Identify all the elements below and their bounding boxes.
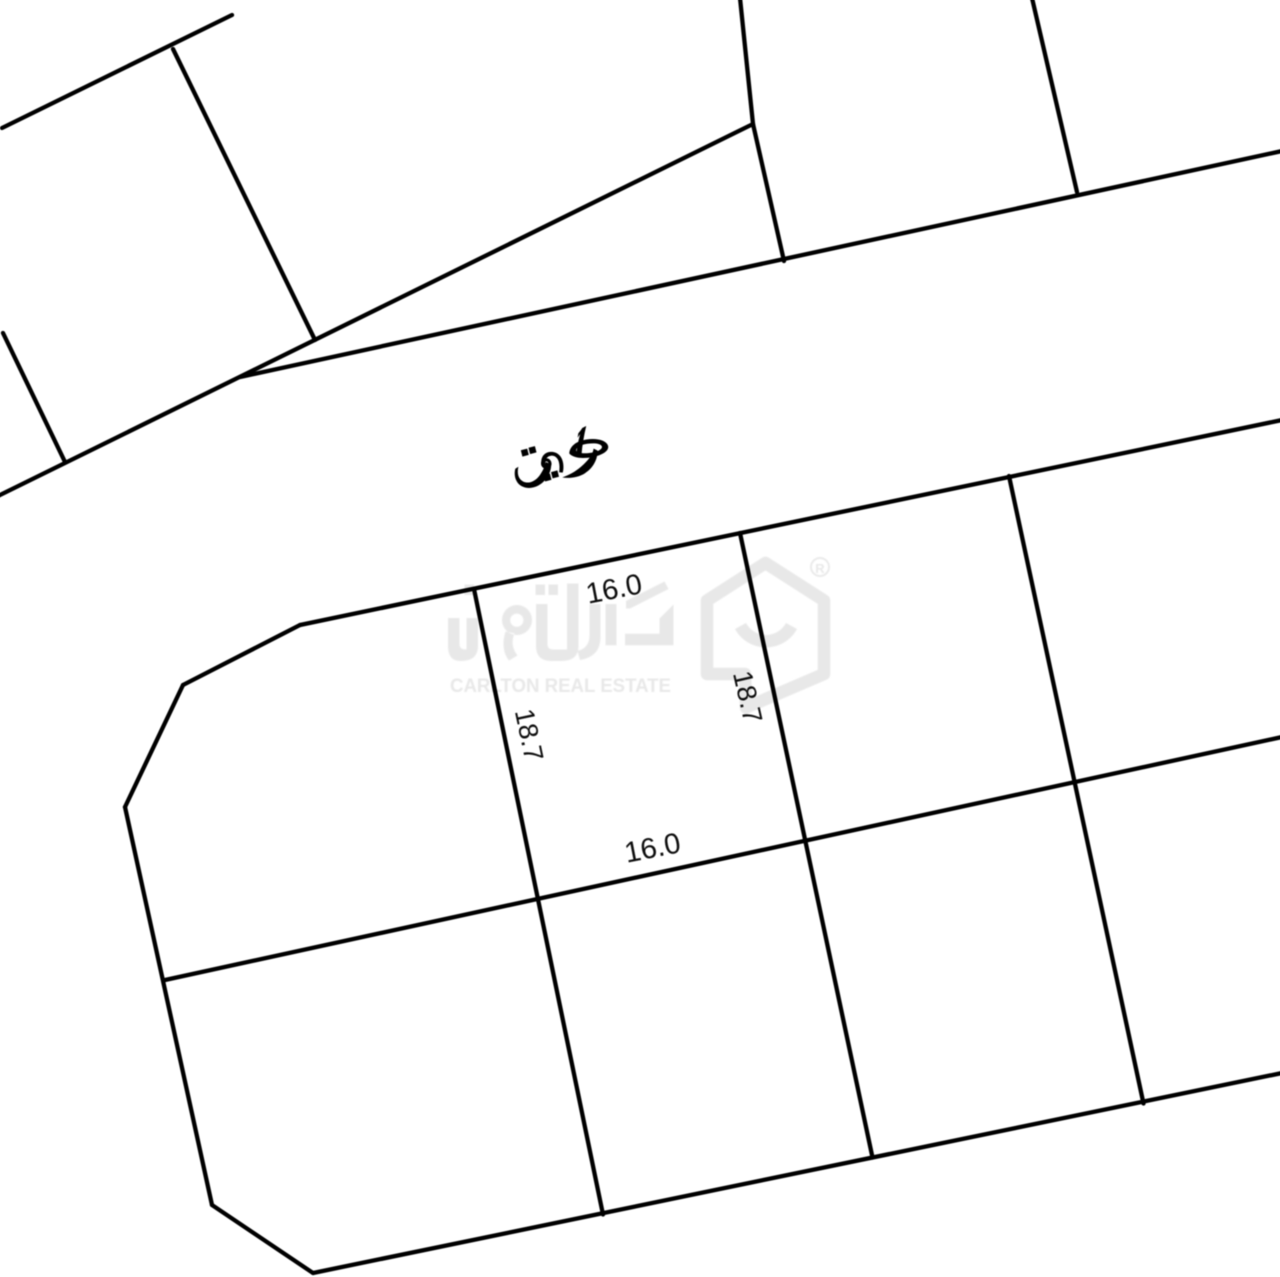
svg-text:CARLTON REAL ESTATE: CARLTON REAL ESTATE bbox=[450, 675, 671, 697]
svg-text:R: R bbox=[815, 561, 825, 576]
